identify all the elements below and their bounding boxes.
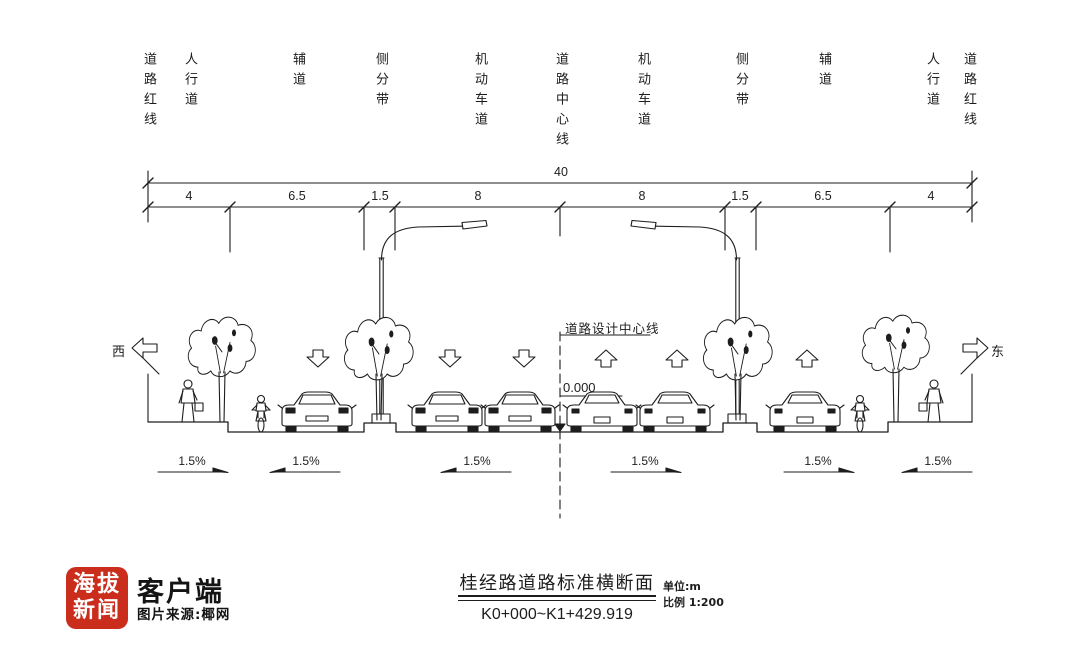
label-motorway-east: 机动车道 <box>635 52 649 132</box>
label-road-red-line-east: 道路红线 <box>961 52 975 132</box>
label-road-centerline: 道路中心线 <box>553 52 567 152</box>
scale-label: 比例 1:200 <box>663 594 724 610</box>
car-icon <box>636 392 714 432</box>
pedestrian-icon <box>179 380 203 422</box>
flow-arrow-up-icon <box>595 350 617 367</box>
dimension-lines <box>143 171 977 252</box>
dim-total-width: 40 <box>539 165 583 179</box>
dim-segment: 4 <box>909 189 953 203</box>
drawing-title: 桂经路道路标准横断面 <box>452 569 662 595</box>
car-icon <box>278 392 356 432</box>
road-cross-section-drawing: 道路红线 人行道 辅道 侧分带 机动车道 道路中心线 机动车道 侧分带 辅道 人… <box>0 0 1080 652</box>
east-arrow-icon <box>963 338 988 358</box>
west-arrow-icon <box>132 338 157 358</box>
dim-segment: 6.5 <box>275 189 319 203</box>
car-icon <box>766 392 844 432</box>
label-slope: 1.5% <box>169 454 215 468</box>
label-design-centerline: 道路设计中心线 <box>565 318 660 337</box>
car-icon <box>481 392 559 432</box>
cyclist-icon <box>252 396 270 433</box>
title-underline <box>458 595 656 601</box>
label-slope: 1.5% <box>915 454 961 468</box>
red-line-boundary-west <box>142 357 159 422</box>
flow-arrow-up-icon <box>796 350 818 367</box>
news-logo-text-bottom: 新闻 <box>73 598 121 624</box>
flow-arrow-down-icon <box>307 350 329 367</box>
pedestrian-icon <box>919 380 943 422</box>
dim-segment: 1.5 <box>358 189 402 203</box>
car-icon <box>563 392 641 432</box>
dim-segment: 8 <box>456 189 500 203</box>
dim-segment: 8 <box>620 189 664 203</box>
label-slope: 1.5% <box>622 454 668 468</box>
news-logo: 海拔 新闻 <box>66 567 128 629</box>
label-motorway-west: 机动车道 <box>472 52 486 132</box>
unit-label: 单位:m <box>663 578 701 594</box>
flow-arrow-down-icon <box>439 350 461 367</box>
label-auxiliary-road-west: 辅道 <box>290 52 304 92</box>
dim-segment: 4 <box>167 189 211 203</box>
label-sidewalk-east: 人行道 <box>924 52 938 112</box>
dim-segment: 1.5 <box>718 189 762 203</box>
dim-segment: 6.5 <box>801 189 845 203</box>
label-slope: 1.5% <box>795 454 841 468</box>
red-line-boundary-east <box>961 357 978 422</box>
label-side-median-east: 侧分带 <box>733 52 747 112</box>
label-direction-east: 东 <box>991 341 1004 360</box>
label-side-median-west: 侧分带 <box>373 52 387 112</box>
tree-icon <box>344 317 413 420</box>
flow-arrow-up-icon <box>666 350 688 367</box>
flow-arrow-down-icon <box>513 350 535 367</box>
label-road-red-line-west: 道路红线 <box>141 52 155 132</box>
drawing-canvas <box>0 0 1080 652</box>
label-slope: 1.5% <box>283 454 329 468</box>
label-auxiliary-road-east: 辅道 <box>816 52 830 92</box>
cyclist-icon <box>851 396 869 433</box>
slope-arrows <box>158 468 972 473</box>
station-range: K0+000~K1+429.919 <box>452 606 662 624</box>
news-logo-text-top: 海拔 <box>73 572 121 598</box>
label-sidewalk-west: 人行道 <box>182 52 196 112</box>
car-icon <box>408 392 486 432</box>
label-direction-west: 西 <box>112 341 125 360</box>
image-source-label: 图片来源:椰网 <box>137 603 230 623</box>
label-slope: 1.5% <box>454 454 500 468</box>
label-elevation: 0.000 <box>563 380 596 395</box>
